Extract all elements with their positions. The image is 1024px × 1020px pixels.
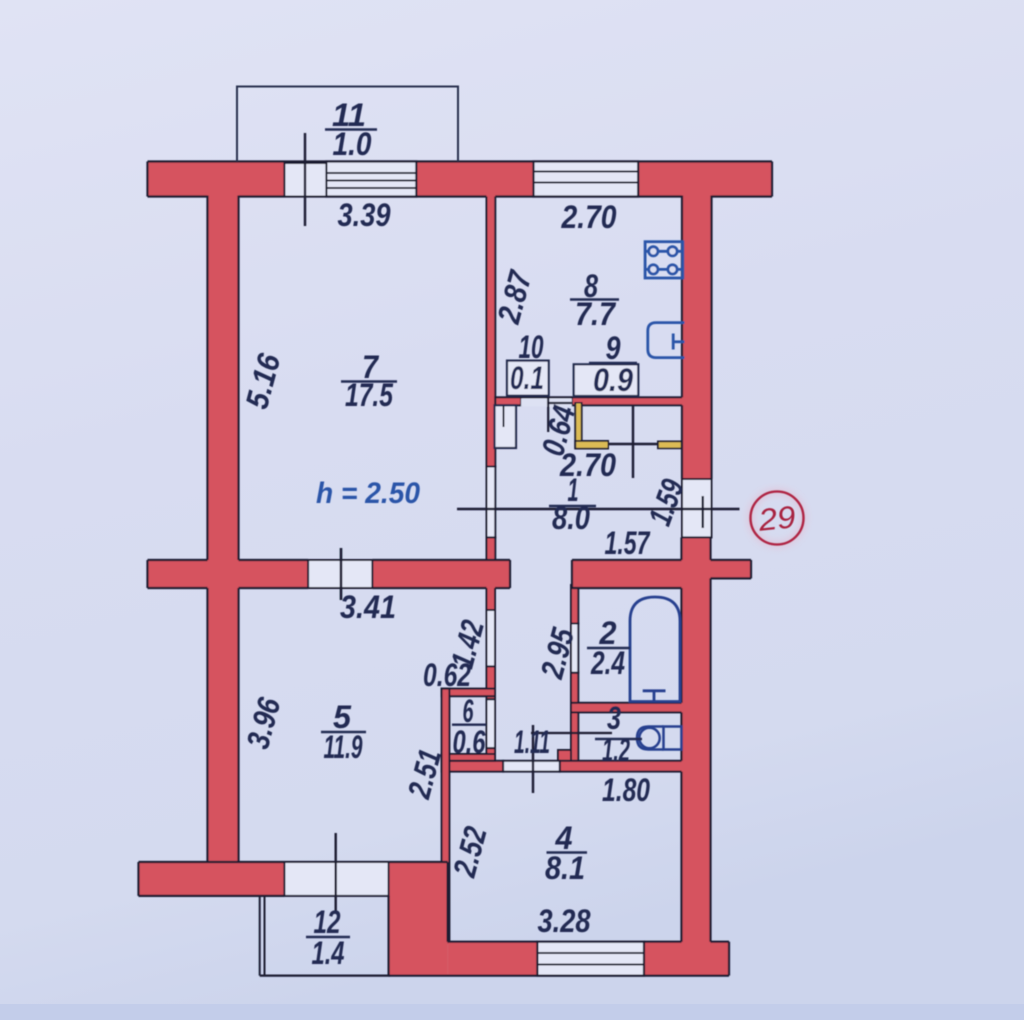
svg-text:1.80: 1.80 xyxy=(602,772,650,808)
svg-text:0.9: 0.9 xyxy=(593,362,633,398)
svg-text:2.70: 2.70 xyxy=(561,199,617,235)
svg-text:0.6: 0.6 xyxy=(453,724,486,760)
svg-text:0.1: 0.1 xyxy=(510,360,544,396)
svg-text:8.1: 8.1 xyxy=(545,850,585,886)
svg-text:1.0: 1.0 xyxy=(333,126,372,162)
svg-text:0.62: 0.62 xyxy=(423,657,471,693)
svg-text:9: 9 xyxy=(606,330,621,366)
svg-text:h = 2.50: h = 2.50 xyxy=(316,477,420,510)
svg-text:29: 29 xyxy=(756,499,798,538)
svg-text:3.41: 3.41 xyxy=(340,589,396,625)
svg-text:3.39: 3.39 xyxy=(338,197,391,233)
svg-text:1.4: 1.4 xyxy=(312,935,345,971)
svg-text:3: 3 xyxy=(607,700,621,736)
svg-text:1.11: 1.11 xyxy=(514,724,550,760)
svg-text:17.5: 17.5 xyxy=(345,377,394,413)
svg-text:11.9: 11.9 xyxy=(324,729,363,765)
svg-text:3.28: 3.28 xyxy=(538,903,591,939)
svg-text:8.0: 8.0 xyxy=(552,500,590,536)
svg-text:1.2: 1.2 xyxy=(602,732,630,768)
svg-text:1.57: 1.57 xyxy=(605,525,652,561)
svg-text:2.4: 2.4 xyxy=(590,645,625,681)
svg-text:7.7: 7.7 xyxy=(575,296,617,332)
